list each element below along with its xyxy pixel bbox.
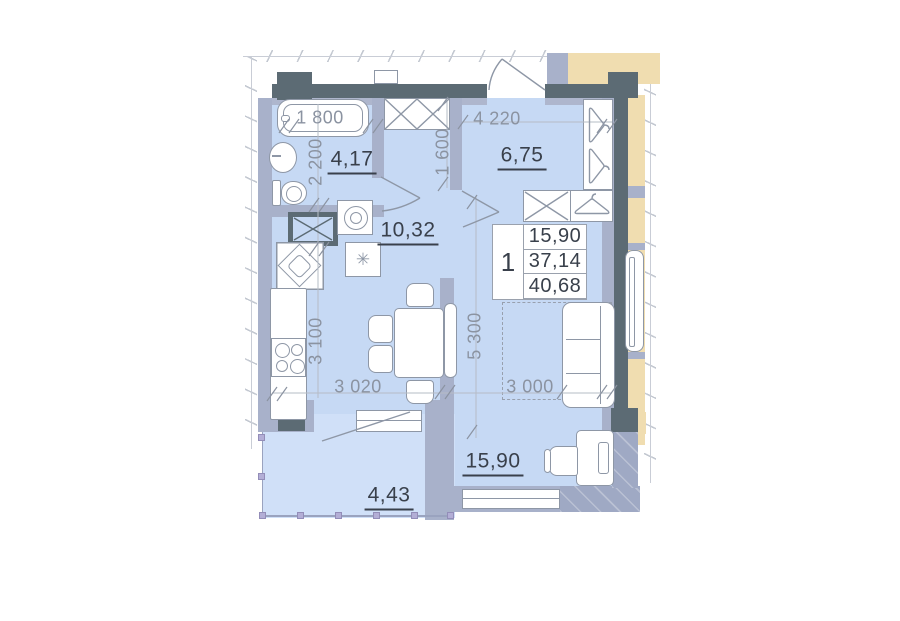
washing-machine-icon xyxy=(337,200,373,235)
dim-kitchen-depth: 3 100 xyxy=(306,317,327,365)
apartment-area-value: 37,14 xyxy=(523,249,587,275)
chair-left1-icon xyxy=(368,315,393,343)
closet-row-icon xyxy=(523,190,613,222)
toilet-icon xyxy=(281,181,307,205)
wall-top-dark-right xyxy=(545,84,612,98)
column-top-right xyxy=(608,72,638,98)
window-living-icon xyxy=(462,489,560,509)
dim-living-depth: 5 300 xyxy=(465,312,486,360)
chair-bottom-icon xyxy=(406,380,434,404)
area-living: 15,90 xyxy=(462,450,523,477)
hall-wardrobe-icon xyxy=(384,98,450,130)
dim-living-width: 3 000 xyxy=(506,377,554,398)
area-hall: 10,32 xyxy=(377,219,438,246)
asterisk-glyph: ✳ xyxy=(356,250,370,270)
tick-line-right xyxy=(650,53,651,483)
railing-post xyxy=(447,512,454,519)
railing-post xyxy=(259,512,266,519)
stove-symbol-icon: ✳ xyxy=(345,242,381,277)
column-bottom-right xyxy=(611,408,638,434)
balcony-railing xyxy=(262,515,454,517)
area-bathroom: 4,17 xyxy=(328,148,377,175)
area-balcony: 4,43 xyxy=(365,484,414,511)
corner-sink-icon xyxy=(278,244,322,288)
apartment-info-table: 1 15,90 37,14 40,68 xyxy=(492,224,587,300)
railing-post xyxy=(373,512,380,519)
chair-left2-icon xyxy=(368,345,393,373)
dining-table-icon xyxy=(394,308,444,378)
bedroom-wardrobe-icon xyxy=(583,99,613,190)
dim-hall-width: 1 600 xyxy=(433,128,454,176)
total-area-value: 40,68 xyxy=(523,273,587,299)
tick-line-left xyxy=(251,57,252,449)
wall-beige-divider-1 xyxy=(628,243,645,250)
railing-post xyxy=(335,512,342,519)
chair-top-icon xyxy=(406,283,434,307)
railing-post xyxy=(297,512,304,519)
wall-entrance-pier xyxy=(547,53,568,84)
adjacent-area-corner xyxy=(638,412,646,434)
desk-chair-icon xyxy=(549,446,578,476)
rooms-count: 1 xyxy=(493,225,523,299)
sliding-door-leaf-icon xyxy=(444,303,457,378)
wall-hatch-right xyxy=(612,432,638,488)
dim-bathtub: 1 800 xyxy=(296,108,344,129)
tick-line-top xyxy=(243,56,565,57)
dim-bedroom-width: 4 220 xyxy=(473,109,521,130)
sofa-icon xyxy=(562,302,615,408)
toilet-tank-icon xyxy=(272,180,281,206)
corner-sink-box xyxy=(276,242,324,290)
balcony-door-sill-icon xyxy=(356,410,422,432)
dim-kitchen-width: 3 020 xyxy=(334,377,382,398)
neighbor-window-icon xyxy=(625,250,644,352)
duct-box xyxy=(374,70,398,84)
cooktop-icon xyxy=(271,338,306,377)
sink-icon xyxy=(269,142,297,173)
living-area-value: 15,90 xyxy=(523,224,587,250)
desk-chair-back-icon xyxy=(544,449,551,473)
railing-post xyxy=(258,434,265,441)
entrance-door-arc-icon xyxy=(489,59,545,90)
area-bedroom: 6,75 xyxy=(498,144,547,171)
vent-shaft-icon xyxy=(288,212,338,246)
column-top-left xyxy=(277,72,312,100)
wall-beige-divider-2 xyxy=(628,352,645,359)
railing-post xyxy=(411,512,418,519)
dim-bathroom-depth: 2 200 xyxy=(306,138,327,186)
floor-plan: ✳ xyxy=(0,0,900,621)
monitor-icon xyxy=(598,442,609,474)
railing-post xyxy=(258,473,265,480)
wall-hatch-bottom xyxy=(560,486,640,512)
wall-balcony-living-pier xyxy=(425,400,454,520)
